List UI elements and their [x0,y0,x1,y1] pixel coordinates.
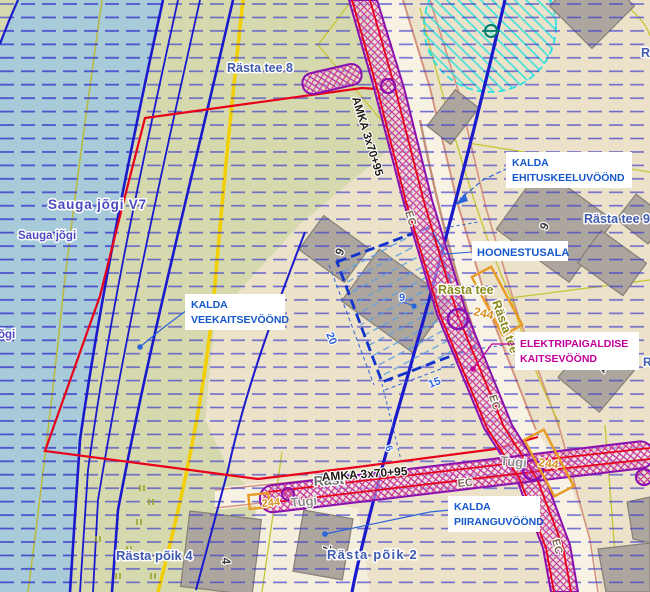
callout-veekaitsevoond: KALDA VEEKAITSEVÖÖND [185,294,289,330]
callout-text: VEEKAITSEVÖÖND [191,313,289,326]
leader-dot-elektripaigaldise [470,366,476,372]
annotation-dot [411,303,416,308]
pole-right [636,469,650,485]
callout-text: KALDA [454,501,491,513]
callout-text: KALDA [512,157,549,169]
callout-ehituskeeluvoond: KALDA EHITUSKEELUVÖÖND [506,152,632,188]
map-canvas[interactable]: 9 6 1 4 7 Rästa tee 8 Rä Rästa tee 9 Räs… [0,0,650,592]
address-rasta-tee-8: Rästa tee 8 [227,61,293,75]
pole-name-2: Tugi [500,453,528,470]
map-viewport[interactable]: 9 6 1 4 7 Rästa tee 8 Rä Rästa tee 9 Räs… [0,0,650,592]
pole-number-2: 244 [538,455,560,472]
leader-dot-veekaitsevoond [137,344,143,350]
callout-text: HOONESTUSALA [477,247,569,259]
dim-9: 9 [399,292,405,304]
pole-number-3: 244 [261,496,281,510]
river-label-clipped: õgi [0,329,15,341]
cable-code-3: EC [457,477,473,490]
address-rasta-poik-2: Rästa põik 2 [327,547,418,562]
callout-text: KAITSEVÖÖND [520,352,597,365]
address-rasta-poik-4: Rästa põik 4 [116,548,193,563]
pole-top [381,79,395,93]
road-name-rasta-tee-h: Rästa tee [438,283,494,297]
callout-text: PIIRANGUVÖÖND [454,515,544,528]
pole-name-1: Tugi [290,493,318,510]
callout-text: ELEKTRIPAIGALDISE [520,338,628,350]
river-parcel-label: Sauga jõgi V7 [48,197,147,212]
callout-piiranguvoond: KALDA PIIRANGUVÖÖND [448,496,544,532]
leader-dot-piiranguvoond [322,531,328,537]
address-clipped-top: Rä [641,46,650,60]
callout-text: KALDA [191,299,228,311]
callout-elektripaigaldise: ELEKTRIPAIGALDISE KAITSEVÖÖND [515,332,639,370]
river-label: Sauga jõgi [18,230,76,242]
address-rasta-tee-9: Rästa tee 9 [584,212,650,226]
address-clipped-mid: R [643,355,650,369]
callout-hoonestusala: HOONESTUSALA [472,241,569,261]
pole-mid [448,309,468,329]
building-number-4: 4 [219,558,233,565]
callout-text: EHITUSKEELUVÖÖND [512,171,625,184]
